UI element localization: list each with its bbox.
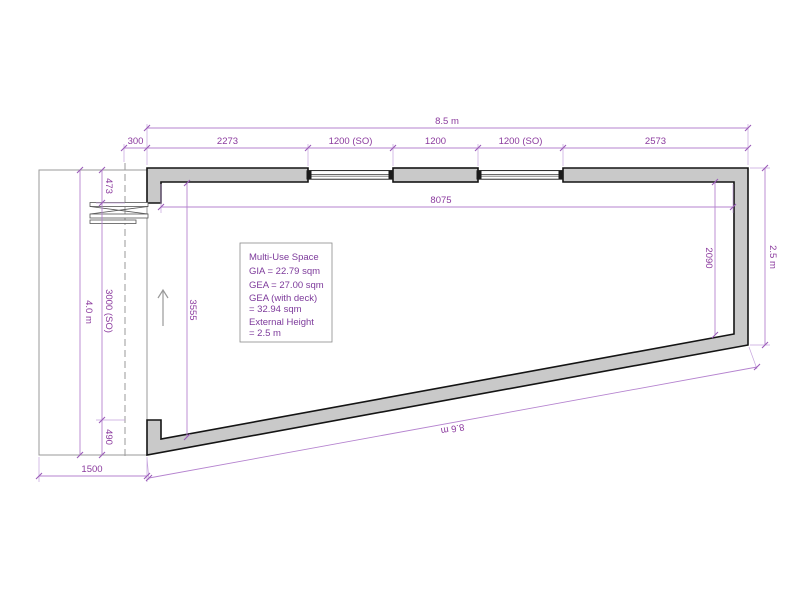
dim-label-1200-so-1: 1200 (SO) (329, 136, 373, 147)
floor-plan-page: 8.5 m 300 2273 1200 (SO) 1200 1200 (SO) … (0, 0, 800, 600)
dim-label-2273: 2273 (217, 136, 238, 147)
info-line-gea-deck: GEA (with deck) (249, 293, 317, 304)
dim-label-left-interior: 3555 (187, 299, 198, 320)
dim-label-3000-so: 3000 (SO) (103, 289, 114, 333)
dim-label-bottom-edge: 8.6 m (440, 421, 465, 436)
walls (147, 168, 748, 455)
info-line-gea-deck-value: = 32.94 sqm (249, 304, 302, 315)
info-box: Multi-Use Space GIA = 22.79 sqm GEA = 27… (240, 243, 332, 342)
direction-arrow-icon (158, 290, 168, 326)
info-line-title: Multi-Use Space (249, 252, 319, 263)
dim-label-left-overall: 4.0 m (83, 300, 94, 324)
info-line-gia: GIA = 22.79 sqm (249, 266, 320, 277)
dim-label-1200-so-2: 1200 (SO) (499, 136, 543, 147)
dim-label-490: 490 (103, 429, 114, 445)
floor-plan-drawing: 8.5 m 300 2273 1200 (SO) 1200 1200 (SO) … (0, 0, 800, 600)
dim-label-right-overall: 2.5 m (767, 245, 778, 269)
dim-label-473: 473 (103, 178, 114, 194)
window-2 (477, 170, 564, 179)
dim-label-right-interior: 2090 (703, 247, 714, 268)
dim-line-bottom-edge (149, 367, 757, 478)
dim-label-1200: 1200 (425, 136, 446, 147)
info-line-height: External Height (249, 317, 314, 328)
dim-label-2573: 2573 (645, 136, 666, 147)
info-line-gea: GEA = 27.00 sqm (249, 280, 324, 291)
dim-label-overall-width: 8.5 m (435, 116, 459, 127)
dim-label-deck-width: 1500 (81, 464, 102, 475)
dim-label-interior-width: 8075 (430, 195, 451, 206)
wall-top-left (147, 168, 308, 203)
wall-main (147, 168, 748, 455)
window-1 (307, 170, 394, 179)
wall-top-middle (393, 168, 478, 182)
dim-label-300: 300 (128, 136, 144, 147)
info-line-height-value: = 2.5 m (249, 328, 281, 339)
